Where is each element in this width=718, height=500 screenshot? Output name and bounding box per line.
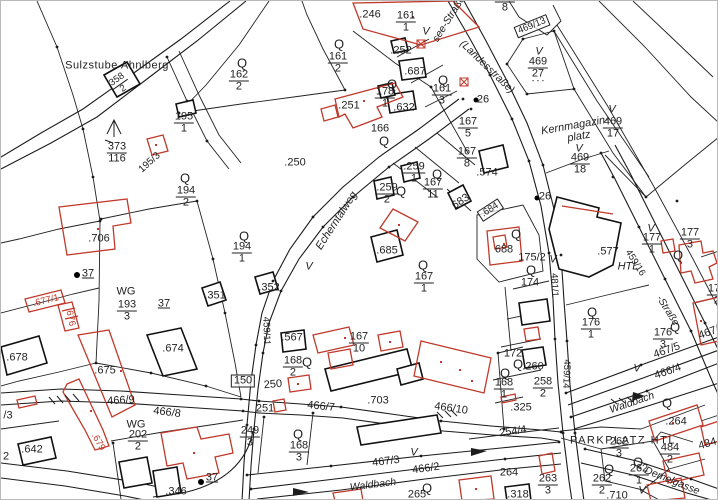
label-687: .687 [404, 67, 425, 78]
label-echerntalweg: Echerntalweg [314, 190, 360, 252]
label-q: Q [511, 228, 521, 241]
label-q: Q [302, 356, 312, 369]
label-landesstra-e: (Landesstraße) [458, 38, 517, 95]
label-37: 37 [82, 269, 94, 280]
label-37: 37 [206, 473, 218, 484]
label-: - - - [532, 77, 544, 85]
label-v: V [638, 486, 645, 497]
label-469-17: 46917 [603, 117, 623, 140]
label-194-1: 1941 [232, 242, 252, 265]
label-193-3: 1933 [117, 300, 137, 323]
label-150: 150 [231, 375, 255, 388]
label-174: 174 [521, 278, 539, 289]
label-352: .352 [258, 283, 279, 294]
label-v: V [410, 448, 417, 459]
label-v: V [422, 27, 429, 38]
label-167-1: 1671 [414, 272, 434, 295]
label-325: .325 [510, 403, 531, 414]
label-703: .703 [367, 396, 388, 407]
label-467-6: 467/6 [697, 322, 718, 342]
label-684: .684 [477, 199, 504, 222]
label-264: 264 [500, 468, 518, 479]
label-161-2: 1612 [328, 52, 348, 75]
label-264: .264 [665, 417, 686, 428]
label-469-18: 46918 [570, 153, 590, 176]
label-467-3: 467/3 [372, 455, 401, 469]
label-waldbach: Waldbach [349, 477, 396, 493]
label-3: /3 [3, 411, 12, 422]
label-waldbach: Waldbach [608, 390, 655, 415]
label-195-3: 195/3 [137, 151, 162, 175]
label-706: .706 [88, 234, 109, 245]
label-250: 250 [263, 379, 282, 392]
label-194-2: 1942 [176, 186, 196, 209]
label-346: .346 [165, 487, 186, 498]
label-167-8: 1678 [457, 147, 477, 170]
label-q: Q [526, 264, 536, 277]
label-249-3: 2493 [240, 426, 260, 449]
label-675: .675 [94, 366, 115, 377]
label-167-11: 16711 [423, 178, 443, 201]
label-q: Q [673, 249, 683, 262]
label-466-4: 466/4 [653, 362, 683, 381]
label-683: 683 [450, 192, 471, 211]
label-wg: WG [127, 420, 146, 431]
label-574: .574 [476, 168, 497, 179]
label-168-2: 1682 [283, 356, 303, 379]
label-469-13: 469/13 [514, 14, 551, 38]
label-459-11: 459/11 [261, 317, 271, 346]
label-202-2: 2022 [128, 430, 148, 453]
label-466-8: 466/8 [153, 406, 182, 420]
label-176-1: 1761 [581, 318, 601, 341]
label-q: Q [662, 397, 672, 410]
label-484-1: 484/1 [697, 434, 718, 452]
label-351: .351 [204, 291, 225, 302]
label-260: .260 [522, 362, 543, 373]
label-466-7: 466/7 [307, 400, 336, 414]
label-v: V [608, 105, 615, 116]
label-v: V [633, 364, 640, 375]
label-q: Q [379, 135, 389, 148]
label-262-3: 2623 [609, 437, 629, 460]
label-481-1: 481/1 [549, 273, 559, 297]
label-167-10: 16710 [349, 332, 369, 355]
label-wg: WG [117, 287, 136, 298]
label-168-3: 1683 [289, 441, 309, 464]
label-sulzstube-ahnlberg: Sulzstube Ahnlberg [65, 61, 169, 72]
label-642: .642 [21, 445, 42, 456]
label-q: Q [396, 185, 406, 198]
label-685: .685 [376, 246, 397, 257]
label-263-3: 2633 [538, 474, 558, 497]
label-679: .679 [89, 432, 106, 453]
label-167-5: 1675 [458, 117, 478, 140]
label-see-stra-e: see-Straße [431, 0, 467, 44]
label-632: .632 [393, 103, 414, 114]
label-567: .567 [281, 333, 302, 344]
label-q: Q [422, 482, 432, 495]
label-246: .246 [359, 10, 380, 21]
label-177-1: 1771 [642, 233, 662, 256]
label-252: .252 [390, 46, 411, 57]
label-251: 251 [256, 404, 274, 415]
label-466-2: 466/2 [412, 462, 441, 477]
label-254-4: 254/4 [499, 425, 528, 440]
label-258-2: 2582 [533, 377, 553, 400]
label-466-10: 466/10 [434, 401, 469, 417]
label-710: .710 [606, 491, 627, 500]
label-577: .577 [597, 247, 618, 258]
label-484-2: 4842 [660, 443, 680, 466]
label-162-8: 1628 [495, 0, 515, 14]
label-466-9: 466/9 [107, 395, 135, 407]
label-2: 2 [3, 452, 9, 463]
label-168-1: 1681 [494, 378, 514, 401]
label-162-2: 1622 [229, 70, 249, 93]
label-677-1: .677/1 [32, 293, 60, 309]
map-labels: Sulzstube Ahnlberg35821951373116195/3Q16… [1, 1, 717, 499]
label-678: .678 [6, 353, 27, 364]
label-251: .251 [338, 101, 359, 112]
label-674: .674 [162, 344, 183, 355]
cadastral-map: Sulzstube Ahnlberg35821951373116195/3Q16… [0, 0, 718, 500]
label-172-2: 1722 [707, 284, 718, 307]
label-161-1: 1611 [396, 11, 416, 34]
label-26: 26 [539, 192, 551, 203]
label-v: V [549, 255, 556, 266]
label-195-1: 1951 [174, 112, 194, 135]
label-358-2: 3582 [107, 71, 133, 98]
label-688: 688 [495, 245, 513, 256]
label-q: Q [334, 38, 344, 51]
label-318: .318 [507, 490, 528, 500]
label-373-116: 373116 [107, 142, 127, 165]
label-demelgasse: Demelgasse [643, 465, 701, 497]
label-459-14: 459/14 [561, 359, 572, 388]
label-178-1: 1781 [375, 87, 395, 110]
label-676: .676 [63, 307, 76, 327]
label-26: 26 [477, 95, 489, 106]
label-37: 37 [158, 299, 170, 310]
label-v: V [305, 262, 312, 273]
label-161-3: 1613 [432, 84, 452, 107]
label-250: .250 [284, 158, 305, 169]
label-q: Q [180, 172, 190, 185]
